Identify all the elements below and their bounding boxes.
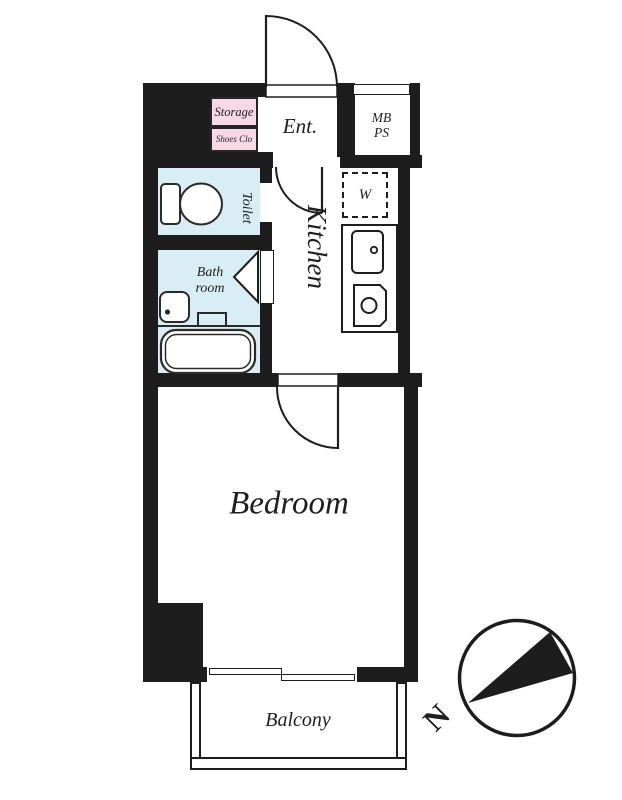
kitchen-sink-icon [352,231,383,273]
balcony-label: Balcony [265,709,331,731]
meter-box-line2: PS [374,125,389,140]
toilet-bowl-icon [180,184,222,225]
meter-box-line1: MB [372,110,392,125]
washer-label: W [342,172,388,218]
kitchen-faucet-icon [371,247,377,253]
bathroom-line2: room [195,281,224,297]
bathroom-label: Bath room [158,258,262,304]
entrance-label: Ent. [263,97,337,157]
stove-burner-icon [362,298,377,313]
bath-step-icon [198,313,226,326]
bath-sink-drain-icon [165,309,170,314]
storage-label: Storage [210,97,258,127]
bedroom-door-arc [277,387,338,448]
entrance-door-opening [266,85,337,97]
bedroom-label: Bedroom [229,486,349,523]
kitchen-label: Kitchen [302,205,332,289]
toilet-label: Toilet [238,192,254,223]
bedroom-door-opening [278,374,338,386]
meter-box-label: MB PS [353,95,410,155]
bathroom-line1: Bath [197,265,223,281]
toilet-tank-icon [161,184,180,224]
bathtub-icon [161,330,255,373]
entrance-door-arc [266,16,337,87]
floor-plan: Storage Shoes Clo Ent. MB PS Toilet W Ki… [0,0,622,800]
shoes-closet-label: Shoes Clo [210,127,258,152]
